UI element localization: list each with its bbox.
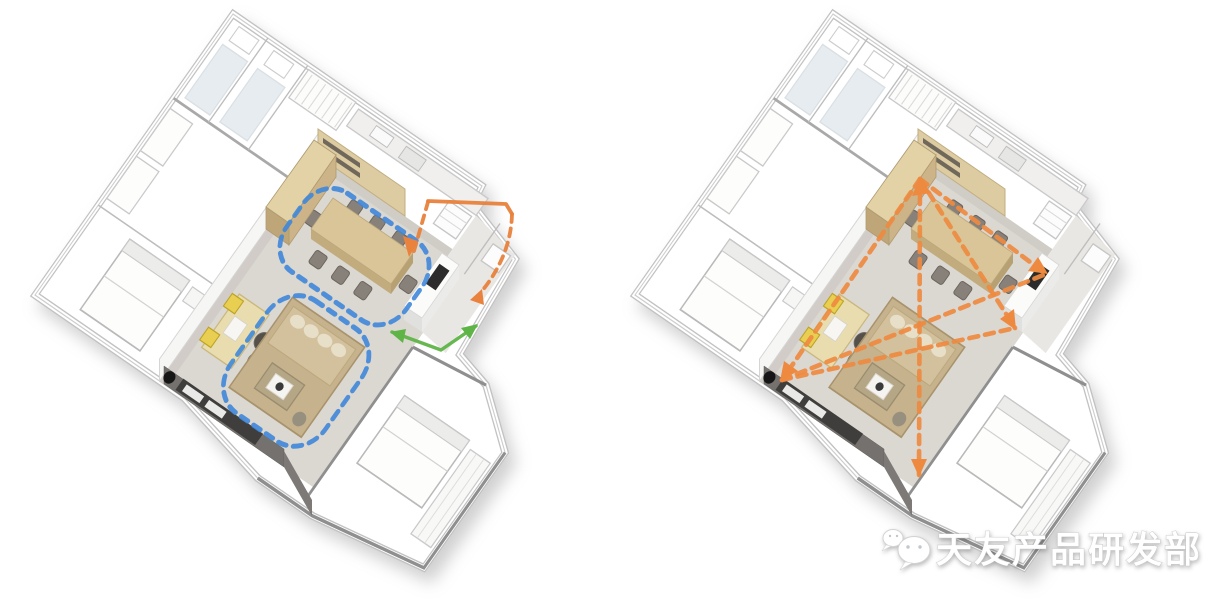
two-panel-floorplan-figure: 天友产品研发部 [0,0,1209,605]
right-floor-plan [621,14,1209,585]
wechat-icon [882,530,930,571]
left-floor-plan [21,14,624,585]
watermark: 天友产品研发部 [882,530,1202,572]
watermark-text: 天友产品研发部 [936,530,1202,571]
scene: 天友产品研发部 [0,0,1209,605]
